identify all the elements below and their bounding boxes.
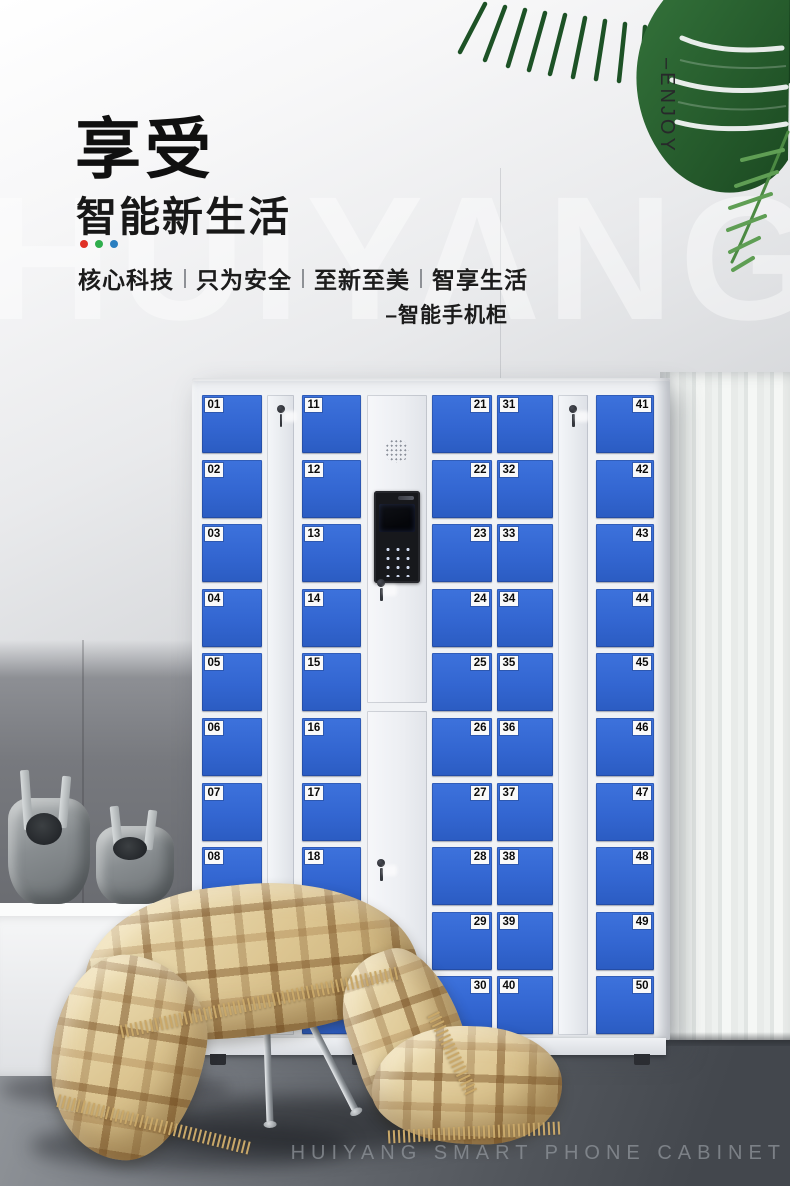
door-number-label: 34 [500, 592, 518, 606]
door-number-label: 36 [500, 721, 518, 735]
locker-door: 32 [497, 460, 553, 518]
locker-door: 29 [432, 912, 492, 970]
locker-door: 45 [596, 653, 654, 711]
keyhole-icon [373, 579, 393, 613]
locker-door: 39 [497, 912, 553, 970]
door-number-label: 41 [633, 398, 651, 412]
locker-door: 44 [596, 589, 654, 647]
door-number-label: 05 [205, 656, 223, 670]
door-number-label: 15 [305, 656, 323, 670]
tagline-item: 智享生活 [432, 261, 528, 295]
locker-door: 41 [596, 395, 654, 453]
locker-door: 50 [596, 976, 654, 1034]
key-tag [575, 411, 589, 422]
product-label: –智能手机柜 [78, 299, 508, 329]
door-number-label: 17 [305, 786, 323, 800]
door-number-label: 44 [633, 592, 651, 606]
accent-dot [110, 240, 118, 248]
locker-door: 15 [302, 653, 361, 711]
door-number-label: 40 [500, 979, 518, 993]
locker-door: 01 [202, 395, 262, 453]
decor-vase [8, 798, 90, 904]
locker-door: 16 [302, 718, 361, 776]
locker-door: 25 [432, 653, 492, 711]
door-number-label: 18 [305, 850, 323, 864]
locker-door: 34 [497, 589, 553, 647]
decor-vase [96, 826, 174, 904]
locker-door: 40 [497, 976, 553, 1034]
door-number-label: 22 [471, 463, 489, 477]
locker-door: 07 [202, 783, 262, 841]
locker-door: 11 [302, 395, 361, 453]
door-number-label: 33 [500, 527, 518, 541]
key-tag [283, 411, 297, 422]
locker-door: 24 [432, 589, 492, 647]
door-number-label: 27 [471, 786, 489, 800]
tagline-item: 至新至美 [314, 261, 410, 295]
locker-door: 48 [596, 847, 654, 905]
intercom-unit [374, 491, 420, 583]
locker-door: 37 [497, 783, 553, 841]
tagline-item: 只为安全 [196, 261, 292, 295]
locker-door: 04 [202, 589, 262, 647]
door-number-label: 04 [205, 592, 223, 606]
tagline: 核心科技只为安全至新至美智享生活 [78, 261, 528, 295]
locker-door: 21 [432, 395, 492, 453]
door-number-label: 06 [205, 721, 223, 735]
door-number-label: 03 [205, 527, 223, 541]
door-number-label: 31 [500, 398, 518, 412]
page-title: 享受 [75, 96, 215, 192]
locker-door: 33 [497, 524, 553, 582]
keypad [381, 543, 413, 577]
keyhole-icon [373, 859, 393, 893]
door-number-label: 35 [500, 656, 518, 670]
door-number-label: 21 [471, 398, 489, 412]
door-number-label: 25 [471, 656, 489, 670]
key-tag [383, 865, 397, 876]
enjoy-vertical-text: –ENJOY [655, 58, 678, 188]
locker-door: 06 [202, 718, 262, 776]
locker-door: 28 [432, 847, 492, 905]
door-number-label: 39 [500, 915, 518, 929]
door-number-label: 37 [500, 786, 518, 800]
tagline-item: 核心科技 [78, 261, 174, 295]
locker-door: 22 [432, 460, 492, 518]
door-number-label: 16 [305, 721, 323, 735]
door-number-label: 13 [305, 527, 323, 541]
locker-door: 14 [302, 589, 361, 647]
key-tag [383, 585, 397, 596]
page-subtitle: 智能新生活 [76, 183, 291, 243]
lock-strip-door [558, 395, 588, 1035]
door-number-label: 23 [471, 527, 489, 541]
locker-door: 27 [432, 783, 492, 841]
locker-door: 05 [202, 653, 262, 711]
locker-door: 13 [302, 524, 361, 582]
cabinet-foot [634, 1054, 650, 1065]
tagline-divider [420, 269, 422, 288]
camera-lens-icon [398, 496, 414, 500]
locker-door: 38 [497, 847, 553, 905]
keyhole-icon [565, 405, 585, 439]
sheer-curtain [660, 372, 790, 1086]
intercom-screen [379, 504, 415, 532]
door-number-label: 46 [633, 721, 651, 735]
locker-door: 02 [202, 460, 262, 518]
door-number-label: 50 [633, 979, 651, 993]
locker-door: 31 [497, 395, 553, 453]
accent-dot [80, 240, 88, 248]
locker-door: 17 [302, 783, 361, 841]
locker-door: 36 [497, 718, 553, 776]
door-number-label: 08 [205, 850, 223, 864]
keyhole-icon [273, 405, 293, 439]
tagline-divider [302, 269, 304, 288]
door-number-label: 28 [471, 850, 489, 864]
door-number-label: 47 [633, 786, 651, 800]
door-number-label: 02 [205, 463, 223, 477]
key-icon [280, 414, 283, 427]
door-number-label: 45 [633, 656, 651, 670]
door-number-label: 24 [471, 592, 489, 606]
door-number-label: 48 [633, 850, 651, 864]
control-panel-door [367, 395, 427, 703]
locker-door: 03 [202, 524, 262, 582]
bottom-caption: HUIYANG SMART PHONE CABINET [291, 1142, 786, 1165]
door-number-label: 26 [471, 721, 489, 735]
door-number-label: 07 [205, 786, 223, 800]
cabinet-foot [210, 1054, 226, 1065]
door-number-label: 32 [500, 463, 518, 477]
door-number-label: 01 [205, 398, 223, 412]
accent-dots [80, 240, 118, 248]
door-number-label: 38 [500, 850, 518, 864]
locker-door: 26 [432, 718, 492, 776]
door-number-label: 11 [305, 398, 322, 412]
door-number-label: 12 [305, 463, 323, 477]
locker-door: 42 [596, 460, 654, 518]
door-number-label: 30 [471, 979, 489, 993]
locker-door: 43 [596, 524, 654, 582]
speaker-icon [385, 439, 409, 463]
locker-door: 49 [596, 912, 654, 970]
locker-door: 23 [432, 524, 492, 582]
door-number-label: 43 [633, 527, 651, 541]
door-number-label: 14 [305, 592, 323, 606]
locker-door: 12 [302, 460, 361, 518]
door-number-label: 42 [633, 463, 651, 477]
tagline-divider [184, 269, 186, 288]
locker-door: 47 [596, 783, 654, 841]
accent-dot [95, 240, 103, 248]
locker-door: 35 [497, 653, 553, 711]
door-number-label: 29 [471, 915, 489, 929]
locker-door: 46 [596, 718, 654, 776]
door-number-label: 49 [633, 915, 651, 929]
